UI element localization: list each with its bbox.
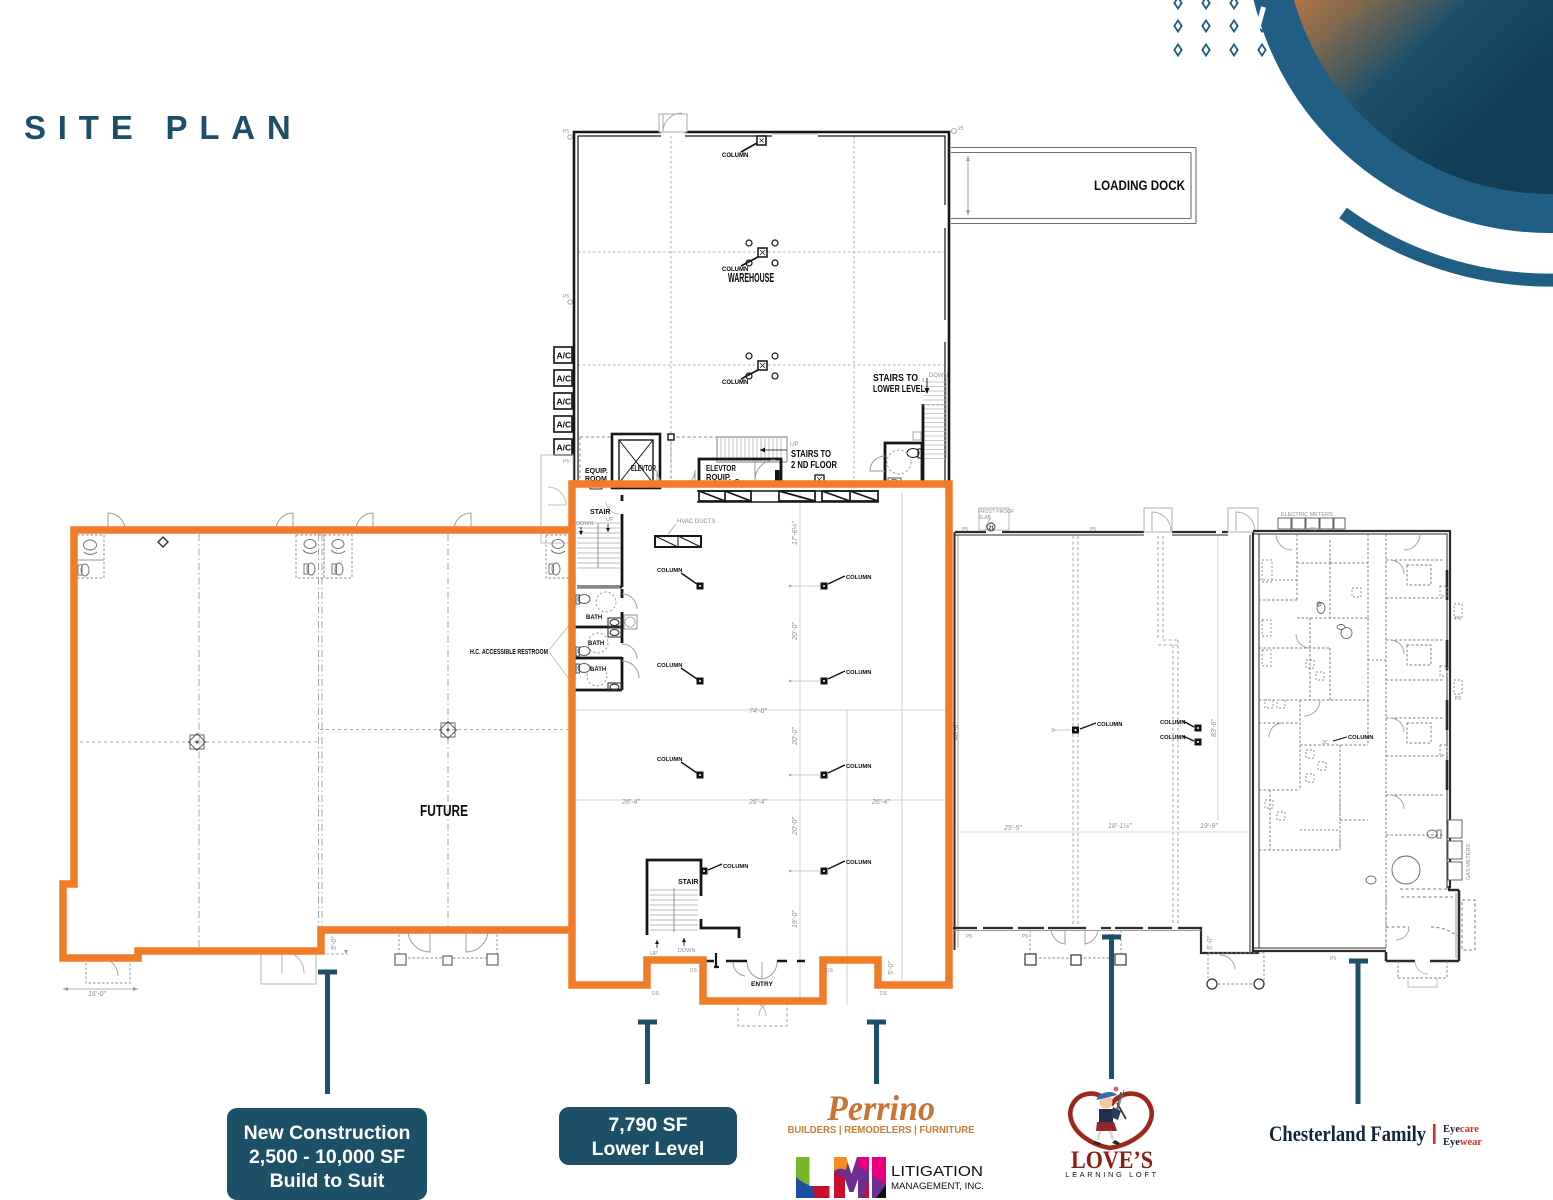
svg-text:COLUMN: COLUMN: [657, 568, 682, 574]
svg-text:A/C: A/C: [557, 351, 572, 361]
svg-text:16'-0": 16'-0": [88, 991, 106, 998]
svg-text:STAIRS TO: STAIRS TO: [791, 449, 831, 460]
svg-text:A/C: A/C: [557, 443, 572, 453]
svg-text:DS: DS: [652, 991, 660, 997]
svg-text:20'-0": 20'-0": [792, 622, 799, 641]
svg-text:LOWER LEVEL: LOWER LEVEL: [873, 384, 925, 395]
svg-text:STAIRS TO: STAIRS TO: [873, 373, 918, 384]
svg-text:P5: P5: [563, 294, 569, 300]
svg-text:STAIR: STAIR: [678, 879, 698, 886]
svg-text:New Construction: New Construction: [244, 1122, 411, 1144]
svg-text:5'-0": 5'-0": [888, 961, 895, 975]
svg-text:COLUMN: COLUMN: [846, 670, 871, 676]
svg-text:18'-1½": 18'-1½": [1108, 822, 1132, 830]
svg-text:5'-0": 5'-0": [1207, 936, 1214, 950]
svg-text:26'-4": 26'-4": [748, 799, 767, 806]
svg-text:25: 25: [958, 126, 964, 132]
svg-text:P5: P5: [1022, 934, 1028, 940]
svg-text:COLUMN: COLUMN: [657, 663, 682, 669]
svg-text:21: 21: [989, 526, 995, 532]
svg-text:P5: P5: [1330, 956, 1336, 962]
svg-text:COLUMN: COLUMN: [1160, 735, 1185, 741]
svg-text:ELECTRIC METERS: ELECTRIC METERS: [1281, 512, 1333, 518]
svg-text:83'-6": 83'-6": [1211, 719, 1218, 737]
svg-text:P5: P5: [1310, 527, 1316, 533]
svg-text:DOWN: DOWN: [678, 948, 695, 954]
svg-text:BUILDERS | REMODELERS | FURNIT: BUILDERS | REMODELERS | FURNITURE: [788, 1124, 975, 1136]
svg-text:A/C: A/C: [557, 397, 572, 407]
svg-text:Lower Level: Lower Level: [592, 1138, 705, 1160]
svg-text:DOWN: DOWN: [576, 521, 593, 527]
svg-text:ELEVTOR: ELEVTOR: [631, 464, 656, 473]
svg-text:DS: DS: [690, 968, 698, 974]
svg-text:COLUMN: COLUMN: [846, 764, 871, 770]
svg-text:7,790 SF: 7,790 SF: [608, 1114, 687, 1136]
svg-text:SLAB: SLAB: [978, 515, 991, 521]
svg-text:19'-0": 19'-0": [792, 910, 799, 928]
svg-text:DOWN: DOWN: [929, 373, 948, 379]
svg-text:26'-4": 26'-4": [621, 799, 640, 806]
svg-text:Eyecare: Eyecare: [1443, 1124, 1479, 1135]
svg-text:EQUIP.: EQUIP.: [585, 468, 608, 475]
svg-text:5'-0": 5'-0": [331, 936, 338, 950]
svg-text:COLUMN: COLUMN: [846, 860, 871, 866]
svg-text:P5: P5: [563, 129, 569, 135]
svg-text:WAREHOUSE: WAREHOUSE: [728, 271, 774, 285]
svg-text:GAS METERS: GAS METERS: [1466, 844, 1472, 880]
svg-text:LOADING DOCK: LOADING DOCK: [1094, 178, 1185, 193]
svg-text:SITE PLAN: SITE PLAN: [24, 109, 303, 146]
svg-text:P5: P5: [1090, 527, 1096, 533]
svg-text:A/C: A/C: [557, 420, 572, 430]
svg-text:COLUMN: COLUMN: [722, 153, 748, 159]
svg-text:COLUMN: COLUMN: [657, 757, 682, 763]
svg-text:Build to Suit: Build to Suit: [270, 1170, 385, 1192]
svg-text:UP: UP: [650, 951, 658, 957]
svg-text:UP: UP: [790, 442, 798, 448]
svg-text:COLUMN: COLUMN: [1097, 722, 1122, 728]
svg-text:Perrino: Perrino: [826, 1088, 935, 1128]
svg-text:17'-6½": 17'-6½": [791, 521, 799, 545]
svg-text:P5: P5: [962, 527, 968, 533]
svg-text:Eyewear: Eyewear: [1443, 1137, 1482, 1148]
svg-text:20'-0": 20'-0": [792, 817, 799, 836]
svg-text:COLUMN: COLUMN: [1160, 720, 1185, 726]
svg-text:Chesterland Family: Chesterland Family: [1269, 1121, 1426, 1146]
svg-text:P5: P5: [1455, 616, 1461, 622]
svg-text:COLUMN: COLUMN: [723, 864, 748, 870]
svg-text:25'-5": 25'-5": [1003, 825, 1022, 832]
svg-text:2 ND FLOOR: 2 ND FLOOR: [791, 460, 838, 471]
svg-text:P5: P5: [1455, 696, 1461, 702]
svg-text:A/C: A/C: [557, 374, 572, 384]
svg-text:LEARNING LOFT: LEARNING LOFT: [1065, 1170, 1158, 1179]
svg-text:20'-0": 20'-0": [792, 727, 799, 746]
svg-text:P5: P5: [563, 459, 569, 465]
svg-text:ENTRY: ENTRY: [751, 981, 773, 988]
svg-text:DS: DS: [826, 968, 834, 974]
svg-text:FUTURE: FUTURE: [420, 803, 468, 820]
svg-text:P5: P5: [966, 934, 972, 940]
svg-text:MANAGEMENT, INC.: MANAGEMENT, INC.: [891, 1181, 984, 1192]
svg-text:HVAC DUCTS: HVAC DUCTS: [677, 519, 716, 525]
svg-text:BATH: BATH: [586, 615, 602, 621]
svg-text:26'-4": 26'-4": [871, 799, 890, 806]
svg-text:LITIGATION: LITIGATION: [891, 1164, 983, 1180]
svg-text:3C: 3C: [1322, 740, 1329, 746]
svg-text:BATH: BATH: [590, 667, 606, 673]
svg-text:19'-9": 19'-9": [1200, 823, 1218, 830]
svg-text:ELEVTOR: ELEVTOR: [706, 464, 736, 473]
svg-text:BATH: BATH: [588, 641, 604, 647]
svg-text:COLUMN: COLUMN: [722, 380, 748, 386]
svg-text:COLUMN: COLUMN: [846, 575, 871, 581]
svg-text:2,500 - 10,000 SF: 2,500 - 10,000 SF: [249, 1146, 405, 1168]
svg-text:DS: DS: [880, 991, 888, 997]
svg-text:74'-0": 74'-0": [749, 708, 767, 715]
svg-text:UP: UP: [606, 517, 614, 523]
svg-text:COLUMN: COLUMN: [1348, 735, 1373, 741]
svg-text:STAIR: STAIR: [590, 509, 610, 516]
svg-text:H.C. ACCESSIBLE RESTROOM: H.C. ACCESSIBLE RESTROOM: [470, 649, 548, 656]
